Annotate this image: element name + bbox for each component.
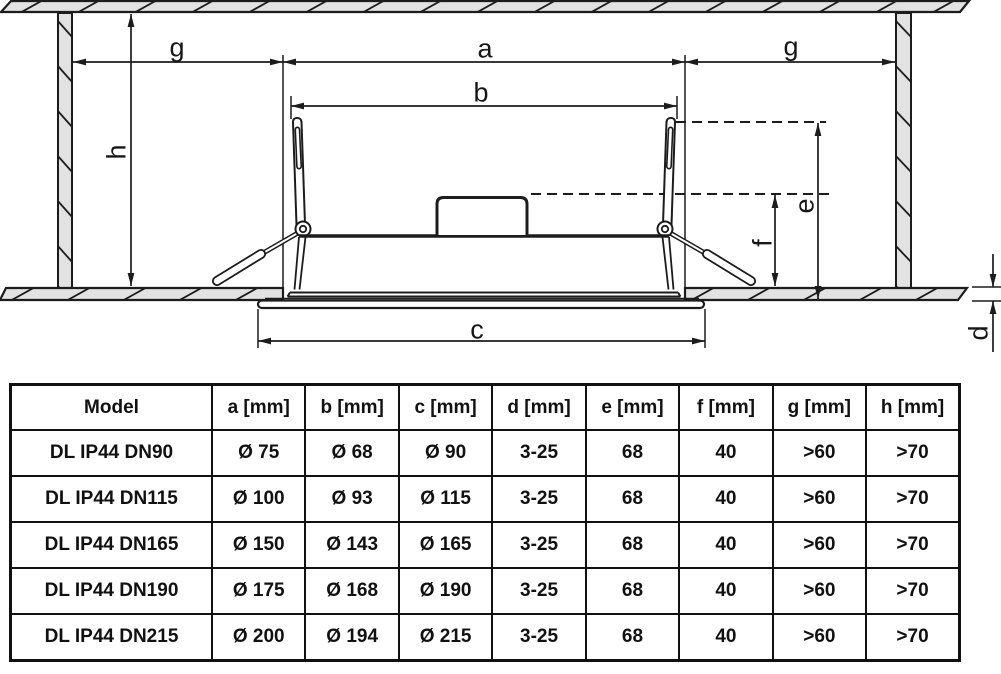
hidden-reference-lines (531, 122, 830, 194)
dim-label-h: h (104, 144, 131, 159)
model-cell: DL IP44 DN165 (11, 522, 213, 568)
value-cell: Ø 75 (212, 430, 305, 476)
table-row: DL IP44 DN215Ø 200Ø 194Ø 2153-256840>60>… (11, 614, 960, 661)
value-cell: 3-25 (492, 568, 585, 614)
luminaire-housing (258, 198, 704, 309)
ceiling-slab-top (1, 0, 969, 14)
column-header: d [mm] (492, 385, 585, 431)
value-cell: 3-25 (492, 614, 585, 661)
dim-label-f: f (750, 239, 777, 247)
driver-box (437, 198, 527, 236)
value-cell: 40 (679, 522, 772, 568)
value-cell: >60 (773, 476, 866, 522)
dim-label-c: c (470, 317, 484, 344)
dim-label-e: e (792, 198, 819, 213)
downlight-datasheet-page: g a g b c h e f d Modela [mm]b [mm]c [mm… (0, 0, 1001, 674)
value-cell: Ø 168 (305, 568, 398, 614)
column-header: h [mm] (866, 385, 959, 431)
value-cell: 40 (679, 568, 772, 614)
value-cell: >70 (866, 430, 959, 476)
dimension-table: Modela [mm]b [mm]c [mm]d [mm]e [mm]f [mm… (9, 383, 961, 662)
model-cell: DL IP44 DN190 (11, 568, 213, 614)
dim-label-g-right: g (783, 34, 798, 61)
value-cell: >70 (866, 568, 959, 614)
value-cell: 68 (586, 568, 679, 614)
value-cell: 3-25 (492, 522, 585, 568)
dim-label-a: a (477, 36, 492, 63)
value-cell: Ø 115 (399, 476, 492, 522)
value-cell: Ø 93 (305, 476, 398, 522)
joist-right (895, 13, 912, 303)
column-header: g [mm] (773, 385, 866, 431)
value-cell: 3-25 (492, 476, 585, 522)
value-cell: >60 (773, 614, 866, 661)
value-cell: Ø 190 (399, 568, 492, 614)
value-cell: 3-25 (492, 430, 585, 476)
table-header-row: Modela [mm]b [mm]c [mm]d [mm]e [mm]f [mm… (11, 385, 960, 431)
table-body: DL IP44 DN90Ø 75Ø 68Ø 903-256840>60>70DL… (11, 430, 960, 661)
table-row: DL IP44 DN165Ø 150Ø 143Ø 1653-256840>60>… (11, 522, 960, 568)
installation-diagram (0, 0, 1001, 378)
value-cell: 40 (679, 614, 772, 661)
value-cell: 68 (586, 430, 679, 476)
value-cell: >70 (866, 614, 959, 661)
value-cell: >60 (773, 568, 866, 614)
column-header: c [mm] (399, 385, 492, 431)
value-cell: Ø 143 (305, 522, 398, 568)
column-header: f [mm] (679, 385, 772, 431)
value-cell: Ø 90 (399, 430, 492, 476)
value-cell: 40 (679, 476, 772, 522)
joist-left (57, 13, 73, 303)
column-header: a [mm] (212, 385, 305, 431)
ceiling-panel-right (685, 286, 967, 301)
value-cell: >60 (773, 522, 866, 568)
value-cell: Ø 165 (399, 522, 492, 568)
model-cell: DL IP44 DN115 (11, 476, 213, 522)
value-cell: >70 (866, 476, 959, 522)
downlight-fixture (217, 118, 751, 308)
column-header: Model (11, 385, 213, 431)
value-cell: 40 (679, 430, 772, 476)
value-cell: Ø 200 (212, 614, 305, 661)
column-header: e [mm] (586, 385, 679, 431)
value-cell: Ø 68 (305, 430, 398, 476)
table-row: DL IP44 DN90Ø 75Ø 68Ø 903-256840>60>70 (11, 430, 960, 476)
model-cell: DL IP44 DN215 (11, 614, 213, 661)
value-cell: >60 (773, 430, 866, 476)
value-cell: Ø 215 (399, 614, 492, 661)
value-cell: 68 (586, 614, 679, 661)
value-cell: Ø 150 (212, 522, 305, 568)
value-cell: >70 (866, 522, 959, 568)
value-cell: 68 (586, 476, 679, 522)
value-cell: 68 (586, 522, 679, 568)
dim-label-b: b (473, 80, 488, 107)
value-cell: Ø 100 (212, 476, 305, 522)
model-cell: DL IP44 DN90 (11, 430, 213, 476)
trim-ring (258, 301, 704, 309)
table-row: DL IP44 DN115Ø 100Ø 93Ø 1153-256840>60>7… (11, 476, 960, 522)
value-cell: Ø 194 (305, 614, 398, 661)
value-cell: Ø 175 (212, 568, 305, 614)
dim-label-d: d (966, 325, 993, 340)
dim-label-g-left: g (169, 35, 184, 62)
ceiling-panel-left (0, 286, 283, 301)
column-header: b [mm] (305, 385, 398, 431)
table-row: DL IP44 DN190Ø 175Ø 168Ø 1903-256840>60>… (11, 568, 960, 614)
